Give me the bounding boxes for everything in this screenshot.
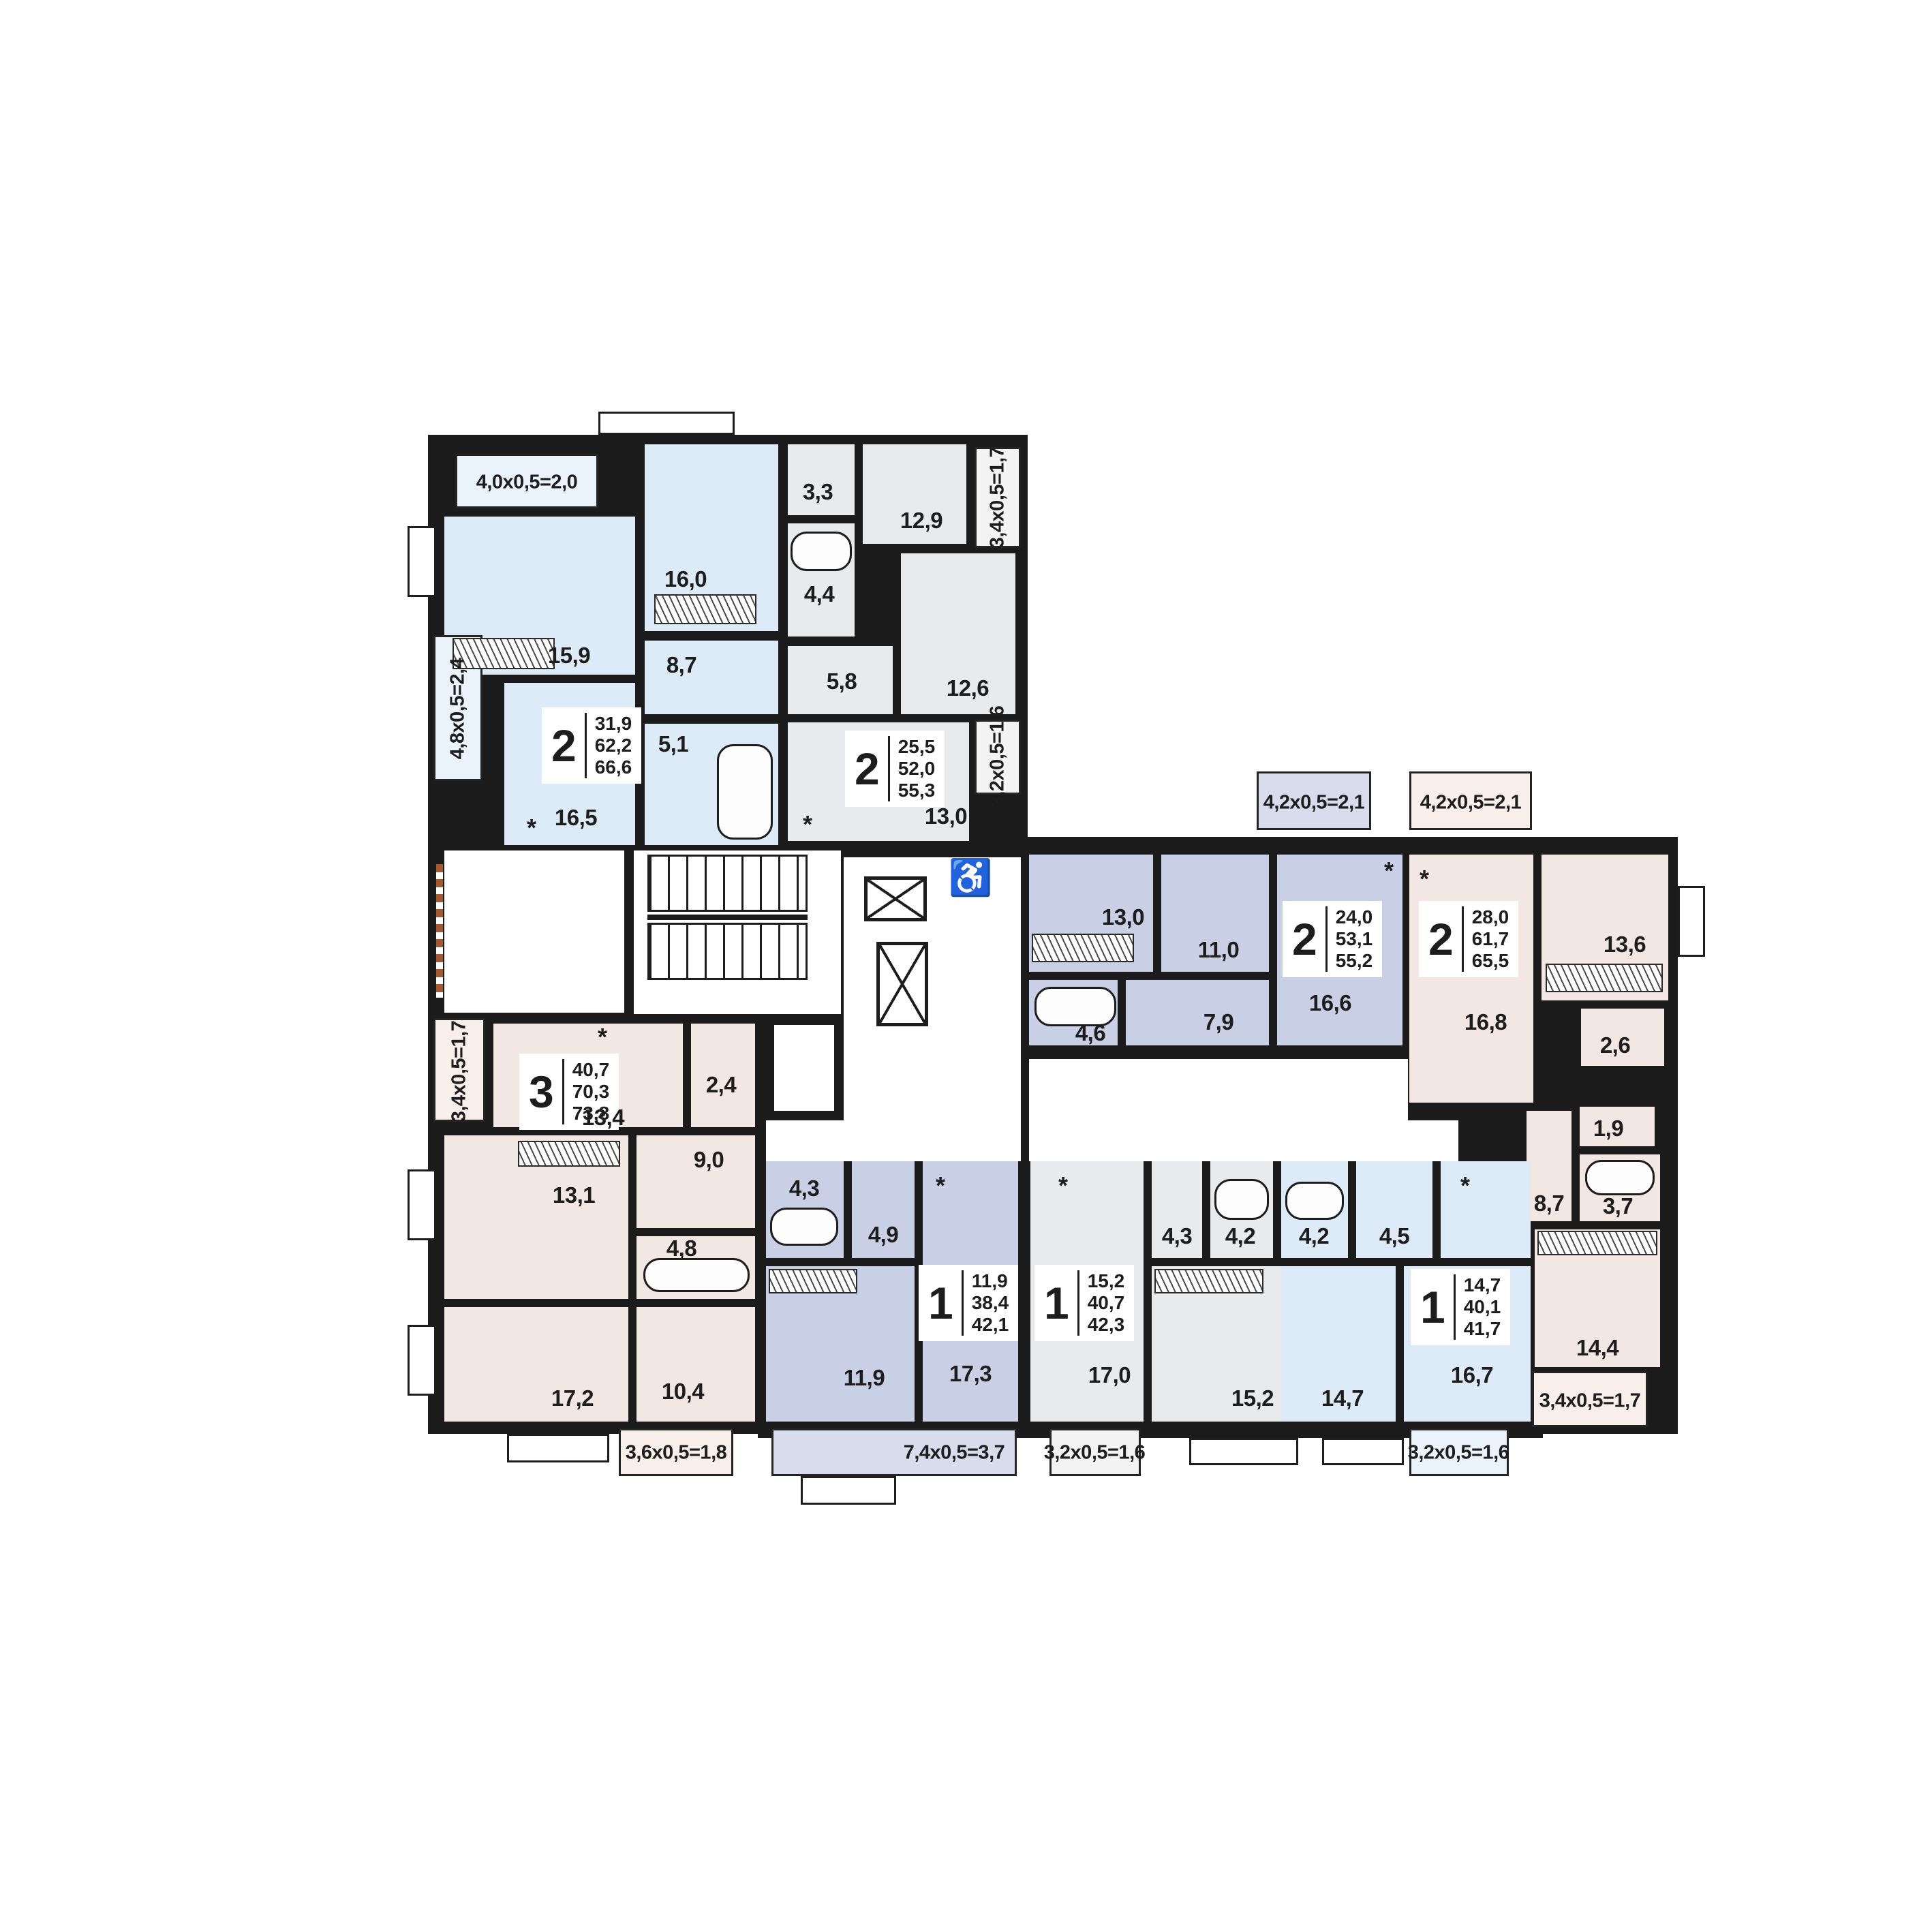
window-sill	[507, 1434, 609, 1462]
room-area-label: 8,7	[666, 652, 696, 678]
area-living-value: 15,2	[1088, 1270, 1125, 1292]
info-box-apt-b: 2 25,5 52,0 55,3	[845, 731, 945, 807]
balcony-dimension-label: 4,2х0,5=2,1	[1263, 792, 1365, 814]
area-total-value: 65,5	[1472, 950, 1509, 972]
room-area-label: 16,8	[1465, 1009, 1507, 1035]
window-sill	[408, 1169, 436, 1240]
room-area-label: 14,4	[1576, 1335, 1619, 1361]
fridge-marker: *	[1420, 865, 1429, 893]
balcony-dimension-label: 3,6х0,5=1,8	[626, 1442, 727, 1465]
room-area-label: 2,6	[1600, 1032, 1630, 1058]
room-area-label: 13,0	[925, 803, 967, 829]
bathtub	[791, 532, 852, 571]
divider	[1462, 906, 1464, 972]
room-area-label: 15,2	[1231, 1385, 1274, 1411]
bathtub	[717, 744, 773, 840]
balcony-dimension-label: 4,8х0,5=2,4	[447, 658, 470, 760]
balcony-dimension-label: 4,2х0,5=2,1	[1420, 792, 1522, 814]
room-area-label: 16,5	[555, 805, 597, 831]
room-area-label: 13,1	[553, 1182, 595, 1208]
area-apartment-value: 38,4	[972, 1292, 1009, 1314]
window-sill	[598, 412, 735, 435]
apt-e-bedroom2	[444, 1307, 628, 1422]
area-living-value: 11,9	[972, 1270, 1009, 1292]
bathtub	[770, 1208, 838, 1246]
apt-type-label: 1	[1044, 1282, 1069, 1325]
room-area-label: 4,9	[868, 1222, 898, 1248]
area-living-value: 25,5	[898, 736, 936, 758]
elevator-shaft	[864, 876, 927, 921]
fridge-marker: *	[1460, 1171, 1470, 1200]
room-area-label: 16,7	[1451, 1362, 1493, 1388]
info-box-apt-a: 2 31,9 62,2 66,6	[542, 707, 641, 784]
corridor	[1408, 1120, 1458, 1161]
area-living-value: 28,0	[1472, 906, 1509, 928]
room-area-label: 11,9	[844, 1365, 885, 1391]
area-apartment-value: 40,7	[1088, 1292, 1125, 1314]
room-area-label: 15,9	[548, 643, 590, 669]
balcony-dimension-label: 4,0х0,5=2,0	[476, 472, 578, 494]
window-sill	[1678, 886, 1705, 957]
room-area-label: 16,0	[664, 566, 707, 592]
stair-landing-divider	[647, 915, 808, 920]
bathtub	[1585, 1160, 1655, 1195]
info-box-apt-g: 1 15,2 40,7 42,3	[1034, 1265, 1134, 1341]
info-box-apt-d: 2 28,0 61,7 65,5	[1419, 901, 1518, 977]
wardrobe-hatch	[1537, 1231, 1657, 1255]
corridor	[766, 1120, 844, 1161]
window-sill	[408, 1325, 436, 1396]
room-area-label: 4,6	[1075, 1020, 1105, 1046]
balcony-dimension-label: 3,2х0,5=1,6	[1408, 1442, 1509, 1465]
corridor	[1029, 1059, 1408, 1161]
area-apartment-value: 52,0	[898, 758, 936, 780]
window-sill	[1189, 1438, 1298, 1465]
room-area-label: 16,6	[1309, 990, 1351, 1016]
wardrobe-hatch	[1546, 964, 1663, 992]
fridge-marker: *	[598, 1023, 607, 1052]
wheelchair-icon: ♿	[949, 857, 993, 899]
apt-type-label: 2	[551, 724, 577, 767]
fridge-marker: *	[803, 810, 812, 839]
balcony-dimension-label: 3,2х0,5=1,6	[987, 706, 1009, 808]
room-area-label: 5,8	[827, 669, 857, 694]
balcony-dimension-label: 3,2х0,5=1,6	[1044, 1442, 1146, 1465]
apt-c-hall	[1126, 980, 1269, 1045]
room-area-label: 5,1	[658, 731, 688, 757]
elevator-shaft	[876, 942, 928, 1026]
divider	[1325, 906, 1328, 972]
room-area-label: 3,3	[803, 479, 833, 505]
divider	[888, 736, 890, 801]
stair-flight	[647, 923, 808, 980]
entrance-door-marker	[436, 864, 443, 998]
area-apartment-value: 61,7	[1472, 928, 1509, 950]
apt-type-label: 2	[1292, 918, 1317, 961]
divider	[1454, 1274, 1456, 1340]
balcony-dimension-label: 7,4х0,5=3,7	[904, 1442, 1005, 1465]
window-sill	[1322, 1438, 1404, 1465]
info-box-apt-h: 1 14,7 40,1 41,7	[1411, 1269, 1510, 1345]
room-area-label: 13,6	[1604, 932, 1646, 957]
room-area-label: 4,3	[1162, 1223, 1192, 1249]
stair-flight	[647, 855, 808, 912]
info-box-apt-f: 1 11,9 38,4 42,1	[919, 1265, 1018, 1341]
divider	[1077, 1270, 1079, 1336]
room-area-label: 17,0	[1088, 1362, 1131, 1388]
area-apartment-value: 62,2	[595, 735, 632, 756]
divider	[585, 713, 587, 778]
balcony-dimension-label: 3,4х0,5=1,7	[448, 1021, 471, 1122]
room-area-label: 10,4	[662, 1379, 704, 1405]
balcony-dimension-label: 3,4х0,5=1,7	[987, 447, 1009, 549]
window-sill	[408, 526, 436, 597]
room-area-label: 7,9	[1203, 1009, 1233, 1035]
room-area-label: 9,0	[694, 1147, 724, 1173]
room-area-label: 4,8	[666, 1236, 696, 1261]
area-total-value: 66,6	[595, 756, 632, 778]
area-living-value: 14,7	[1464, 1274, 1501, 1296]
apt-a-hall	[645, 641, 778, 714]
fridge-marker: *	[1384, 857, 1394, 885]
room-area-label: 12,6	[947, 675, 989, 701]
room-area-label: 13,4	[582, 1105, 624, 1131]
wardrobe-hatch	[518, 1141, 620, 1167]
room-area-label: 4,2	[1299, 1223, 1329, 1249]
floor-plan: ♿ 15,9 16,0 8,7 16,5 5,1 4,0х0,5=2,0 4,8…	[0, 0, 1932, 1932]
room-area-label: 14,7	[1321, 1385, 1364, 1411]
wardrobe-hatch	[1154, 1269, 1263, 1293]
room-area-label: 4,2	[1225, 1223, 1255, 1249]
balcony-dimension-label: 3,4х0,5=1,7	[1539, 1390, 1641, 1413]
room-area-label: 4,5	[1379, 1223, 1409, 1249]
info-box-apt-c: 2 24,0 53,1 55,2	[1283, 901, 1382, 977]
entrance-vestibule	[444, 850, 624, 1013]
apt-type-label: 3	[529, 1071, 554, 1114]
room-area-label: 3,7	[1603, 1193, 1633, 1219]
area-apartment-value: 40,1	[1464, 1296, 1501, 1318]
fridge-marker: *	[936, 1171, 945, 1200]
area-total-value: 42,3	[1088, 1314, 1125, 1336]
room-area-label: 11,0	[1198, 937, 1239, 963]
apt-type-label: 1	[1420, 1286, 1445, 1329]
room-area-label: 17,2	[551, 1385, 594, 1411]
area-apartment-value: 53,1	[1336, 928, 1373, 950]
wardrobe-hatch	[654, 594, 756, 624]
area-living-value: 40,7	[572, 1059, 610, 1081]
bathtub	[643, 1258, 750, 1292]
area-total-value: 41,7	[1464, 1318, 1501, 1340]
divider	[562, 1059, 564, 1124]
area-living-value: 24,0	[1336, 906, 1373, 928]
apt-type-label: 2	[855, 748, 880, 791]
wardrobe-hatch	[769, 1269, 857, 1293]
room-area-label: 8,7	[1534, 1191, 1564, 1216]
area-total-value: 55,3	[898, 780, 936, 801]
area-apartment-value: 70,3	[572, 1081, 610, 1103]
window-sill	[801, 1476, 896, 1505]
room-area-label: 1,9	[1593, 1116, 1623, 1141]
apt-type-label: 1	[928, 1282, 953, 1325]
area-living-value: 31,9	[595, 713, 632, 735]
fridge-marker: *	[527, 814, 536, 842]
bathtub	[1285, 1182, 1344, 1220]
room-area-label: 4,4	[804, 581, 834, 607]
room-area-label: 13,0	[1102, 904, 1144, 930]
room-area-label: 2,4	[706, 1072, 736, 1098]
area-total-value: 55,2	[1336, 950, 1373, 972]
divider	[962, 1270, 964, 1336]
bathtub	[1214, 1179, 1269, 1220]
room-area-label: 17,3	[949, 1361, 992, 1387]
area-total-value: 42,1	[972, 1314, 1009, 1336]
wardrobe-hatch	[1032, 934, 1134, 962]
apt-h-kitchen-part	[1441, 1161, 1531, 1258]
apt-type-label: 2	[1428, 918, 1454, 961]
room-area-label: 12,9	[900, 508, 942, 534]
room-area-label: 4,3	[789, 1176, 819, 1201]
fridge-marker: *	[1058, 1171, 1068, 1200]
